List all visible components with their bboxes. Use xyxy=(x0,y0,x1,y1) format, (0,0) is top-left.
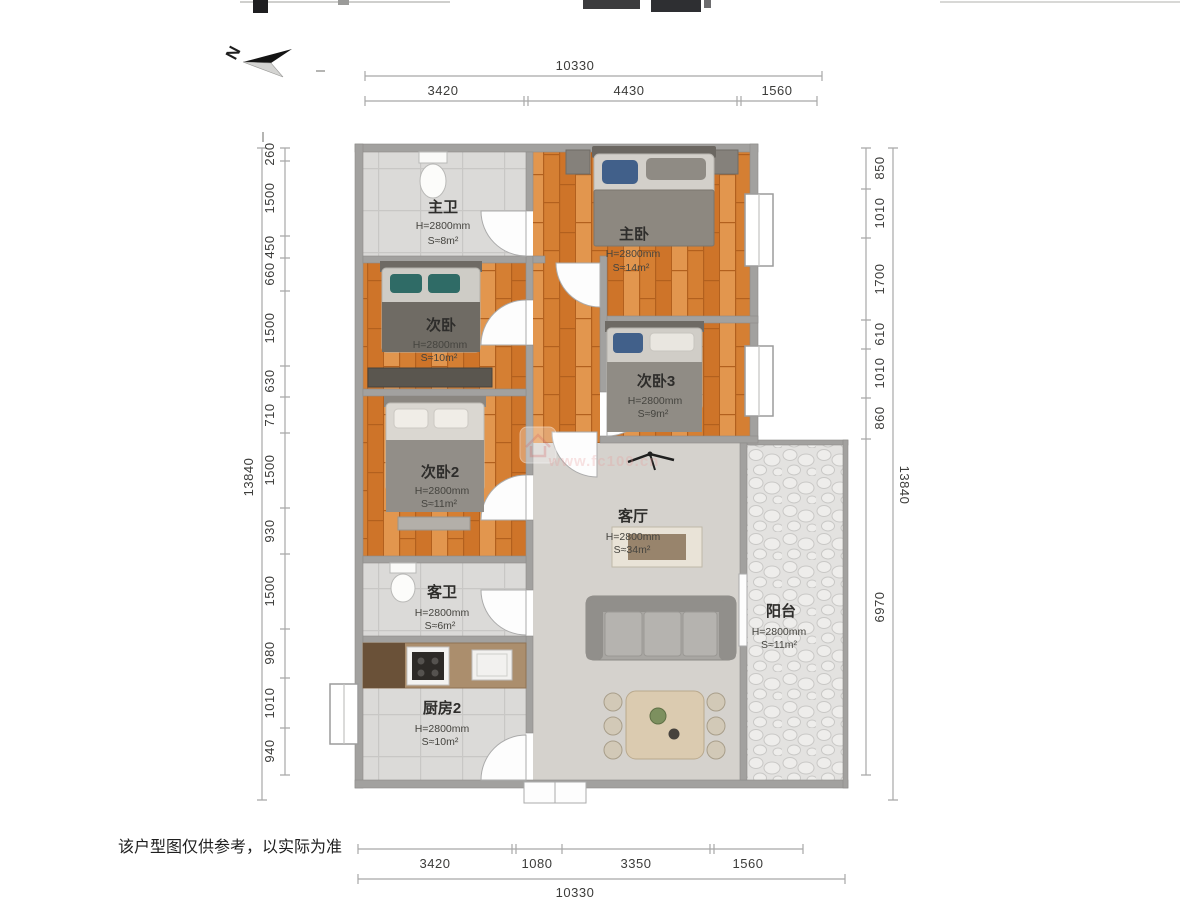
dim-line-left-segments xyxy=(280,148,290,775)
wall-bedroom3-bottom xyxy=(600,436,758,443)
dim-left-seg-2: 450 xyxy=(262,235,277,258)
dim-left-seg-6: 710 xyxy=(262,403,277,426)
room-area-kitchen: S≈10m² xyxy=(422,736,459,748)
dining-chair xyxy=(707,741,725,759)
dim-line-right-total xyxy=(888,148,898,800)
dim-right-seg-1: 1010 xyxy=(872,198,887,229)
dim-top-seg-1: 4430 xyxy=(614,83,645,98)
dim-bottom-seg-0: 3420 xyxy=(420,856,451,871)
sofa-armrest xyxy=(586,600,603,660)
room-label-guest-bath: 客卫 xyxy=(426,583,457,601)
dim-left-seg-5: 630 xyxy=(262,369,277,392)
wall-balcony-right xyxy=(843,440,848,788)
artifact-mark xyxy=(253,0,268,13)
dining-set xyxy=(604,691,725,759)
dim-left-seg-7: 1500 xyxy=(262,455,277,486)
north-arrow: N xyxy=(222,43,325,142)
sofa-armrest xyxy=(719,600,736,660)
burner xyxy=(432,670,439,677)
artifact-line xyxy=(940,1,1180,3)
dining-chair xyxy=(604,693,622,711)
north-label: N xyxy=(222,43,245,63)
sofa-cushion xyxy=(644,612,681,656)
dining-chair xyxy=(707,693,725,711)
pillow xyxy=(428,274,460,293)
dim-left-seg-1: 1500 xyxy=(262,183,277,214)
pillow xyxy=(602,160,638,184)
floor-plan-svg: 主卫 H=2800mm S≈8m² 主卧 H=2800mm S≈14m² 次卧 … xyxy=(0,0,1200,900)
toilet-bowl xyxy=(391,574,415,602)
disclaimer-text: 该户型图仅供参考，以实际为准 xyxy=(118,838,342,856)
pillow xyxy=(390,274,422,293)
dim-left-seg-4: 1500 xyxy=(262,313,277,344)
room-height-bedroom-second: H=2800mm xyxy=(413,339,468,351)
dining-chair xyxy=(604,717,622,735)
dimension-top-labels: 10330 3420 4430 1560 xyxy=(428,58,793,98)
wall-divider xyxy=(363,389,526,396)
room-label-master-bath: 主卫 xyxy=(428,198,458,216)
room-label-balcony: 阳台 xyxy=(766,602,796,620)
room-height-kitchen: H=2800mm xyxy=(415,723,470,735)
sofa-back xyxy=(586,596,736,612)
dim-bottom-seg-3: 1560 xyxy=(733,856,764,871)
dim-right-total: 13840 xyxy=(897,466,912,505)
dim-bottom-total: 10330 xyxy=(556,885,595,900)
sofa-cushion xyxy=(605,612,642,656)
dim-right-seg-2: 1700 xyxy=(872,264,887,295)
room-label-master-bedroom: 主卧 xyxy=(619,225,649,243)
dim-top-total: 10330 xyxy=(556,58,595,73)
toilet-tank xyxy=(390,563,416,573)
wall-divider xyxy=(526,152,533,211)
north-arrow-dark xyxy=(243,49,292,63)
stove-icon xyxy=(412,652,444,680)
wall-divider xyxy=(526,256,533,300)
room-label-bedroom-2: 次卧2 xyxy=(421,463,459,481)
floor-plan-page: 主卫 H=2800mm S≈8m² 主卧 H=2800mm S≈14m² 次卧 … xyxy=(0,0,1200,900)
room-height-master-bedroom: H=2800mm xyxy=(606,248,661,260)
dim-left-seg-9: 1500 xyxy=(262,576,277,607)
north-tick xyxy=(316,70,325,72)
room-label-bedroom-second: 次卧 xyxy=(426,316,456,334)
room-height-bedroom-3: H=2800mm xyxy=(628,395,683,407)
dining-chair xyxy=(707,717,725,735)
room-area-master-bath: S≈8m² xyxy=(428,235,459,247)
dim-right-seg-5: 860 xyxy=(872,406,887,429)
dim-right-seg-0: 850 xyxy=(872,156,887,179)
wall-divider xyxy=(363,556,526,563)
dimension-right-labels: 850 1010 1700 610 1010 860 6970 13840 xyxy=(872,156,912,622)
dining-table xyxy=(626,691,704,759)
table-bowl xyxy=(669,729,680,740)
dim-left-seg-3: 660 xyxy=(262,262,277,285)
wall-divider xyxy=(363,636,526,643)
dining-chair xyxy=(604,741,622,759)
dim-left-total: 13840 xyxy=(241,458,256,497)
counter-dark-cabinet xyxy=(363,643,405,688)
nightstand xyxy=(714,150,738,174)
wall-bottom xyxy=(355,780,848,788)
room-area-master-bedroom: S≈14m² xyxy=(613,262,650,274)
balcony-slider-door xyxy=(739,574,747,646)
room-label-kitchen: 厨房2 xyxy=(423,699,461,717)
burner xyxy=(432,658,439,665)
kitchen-counter xyxy=(363,643,526,688)
room-label-bedroom-3: 次卧3 xyxy=(637,372,675,390)
north-tick xyxy=(262,132,264,142)
dim-top-seg-2: 1560 xyxy=(762,83,793,98)
artifact-mark xyxy=(583,0,640,9)
dim-right-seg-4: 1010 xyxy=(872,358,887,389)
room-height-living: H=2800mm xyxy=(606,531,661,543)
room-area-living: S≈34m² xyxy=(614,544,651,556)
wall-balcony-top xyxy=(747,440,848,445)
room-height-balcony: H=2800mm xyxy=(752,626,807,638)
artifact-mark xyxy=(704,0,711,8)
wall-corridor-top xyxy=(533,256,545,263)
burner xyxy=(418,670,425,677)
sofa xyxy=(586,596,736,660)
toilet-tank xyxy=(419,152,447,163)
sofa-cushion xyxy=(683,612,717,656)
room-area-bedroom-3: S≈9m² xyxy=(638,408,669,420)
room-area-bedroom-2: S≈11m² xyxy=(421,498,457,510)
dim-left-seg-0: 260 xyxy=(262,142,277,165)
dim-line-bottom-segments xyxy=(358,844,803,854)
north-arrow-light xyxy=(243,62,283,77)
dim-top-seg-0: 3420 xyxy=(428,83,459,98)
dim-line-right-segments xyxy=(861,148,871,775)
dim-bottom-seg-2: 3350 xyxy=(621,856,652,871)
pillow xyxy=(646,158,706,180)
dim-right-seg-6: 6970 xyxy=(872,592,887,623)
dimension-left-labels: 260 1500 450 660 1500 630 710 1500 930 1… xyxy=(241,142,277,762)
room-area-balcony: S≈11m² xyxy=(761,639,797,651)
dim-bottom-seg-1: 1080 xyxy=(522,856,553,871)
watermark-url: www.fc100.cn xyxy=(548,453,660,470)
dim-line-bottom-total xyxy=(358,874,845,884)
bed-blanket xyxy=(594,190,714,246)
room-area-guest-bath: S≈6m² xyxy=(425,620,456,632)
pillow xyxy=(613,333,643,353)
dimension-bottom-labels: 3420 1080 3350 1560 10330 xyxy=(420,856,764,900)
room-area-bedroom-second: S≈10m² xyxy=(421,352,458,364)
wall-divider xyxy=(526,520,533,590)
toilet-icon-master-bath xyxy=(419,152,447,198)
table-plant xyxy=(650,708,666,724)
dim-left-seg-10: 980 xyxy=(262,641,277,664)
room-height-guest-bath: H=2800mm xyxy=(415,607,470,619)
pillow xyxy=(650,333,694,351)
top-edge-artifacts xyxy=(240,0,1180,13)
dim-left-seg-11: 1010 xyxy=(262,688,277,719)
artifact-mark xyxy=(338,0,349,5)
artifact-mark xyxy=(651,0,701,12)
nightstand xyxy=(566,150,590,174)
wall-divider xyxy=(526,636,533,733)
dim-left-seg-12: 940 xyxy=(262,739,277,762)
bed-bench xyxy=(398,517,470,530)
dimension-right xyxy=(861,148,898,800)
burner xyxy=(418,658,425,665)
toilet-icon-guest-bath xyxy=(390,563,416,602)
dim-right-seg-3: 610 xyxy=(872,322,887,345)
toilet-bowl xyxy=(420,164,446,198)
room-label-living: 客厅 xyxy=(617,507,648,525)
pillow xyxy=(394,409,428,428)
wardrobe xyxy=(368,368,492,387)
room-height-master-bath: H=2800mm xyxy=(416,220,471,232)
pillow xyxy=(434,409,468,428)
dim-left-seg-8: 930 xyxy=(262,519,277,542)
room-height-bedroom-2: H=2800mm xyxy=(415,485,470,497)
